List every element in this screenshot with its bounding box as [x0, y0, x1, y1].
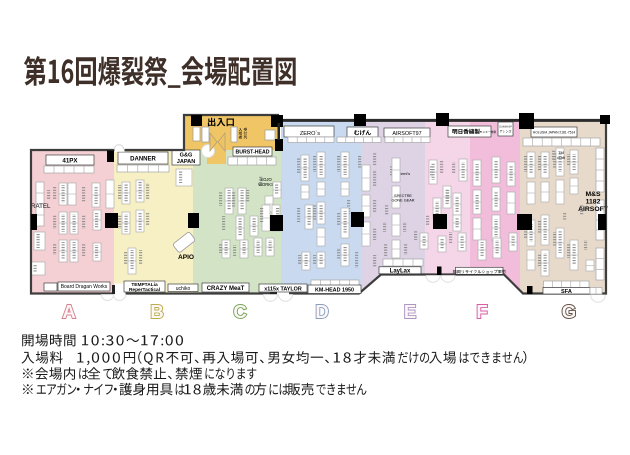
svg-text:WORKS: WORKS	[258, 182, 274, 187]
svg-text:D: D	[315, 301, 328, 322]
svg-text:LayLax: LayLax	[390, 269, 411, 275]
svg-text:B: B	[150, 301, 163, 322]
svg-text:ZERO`s: ZERO`s	[300, 131, 320, 137]
svg-text:RATEL: RATEL	[31, 203, 51, 210]
svg-text:x115x TAYLOR: x115x TAYLOR	[264, 286, 302, 292]
svg-text:JAPAN: JAPAN	[177, 159, 196, 165]
svg-text:SPECTRE: SPECTRE	[394, 194, 412, 198]
svg-text:G&G: G&G	[180, 152, 193, 158]
svg-text:KM-HEAD 1950: KM-HEAD 1950	[315, 288, 354, 294]
svg-text:G: G	[562, 301, 576, 322]
svg-text:1182: 1182	[586, 199, 601, 206]
svg-text:AIRSOFT97: AIRSOFT97	[392, 131, 421, 137]
svg-text:CRAZY MeaT: CRAZY MeaT	[207, 286, 245, 292]
svg-text:A: A	[62, 301, 75, 322]
svg-text:craft: craft	[557, 155, 566, 160]
svg-text:APIO: APIO	[178, 254, 194, 261]
svg-text:uchiko: uchiko	[176, 286, 191, 292]
svg-text:HOLUSIA JAPAN 2181-7514: HOLUSIA JAPAN 2181-7514	[533, 131, 575, 135]
svg-text:BURST-HEAD: BURST-HEAD	[235, 150, 269, 156]
svg-text:F: F	[476, 301, 487, 322]
svg-text:C: C	[233, 301, 246, 322]
svg-text:DANNER: DANNER	[130, 157, 156, 163]
svg-text:M&S: M&S	[585, 191, 601, 198]
svg-text:GONE GEAR: GONE GEAR	[392, 199, 415, 203]
svg-text:SFA: SFA	[561, 289, 572, 295]
svg-text:ReperTactical: ReperTactical	[129, 287, 160, 293]
svg-text:41PX: 41PX	[62, 158, 78, 165]
svg-text:Board Dragan Works: Board Dragan Works	[61, 284, 108, 290]
svg-text:E: E	[404, 301, 416, 322]
